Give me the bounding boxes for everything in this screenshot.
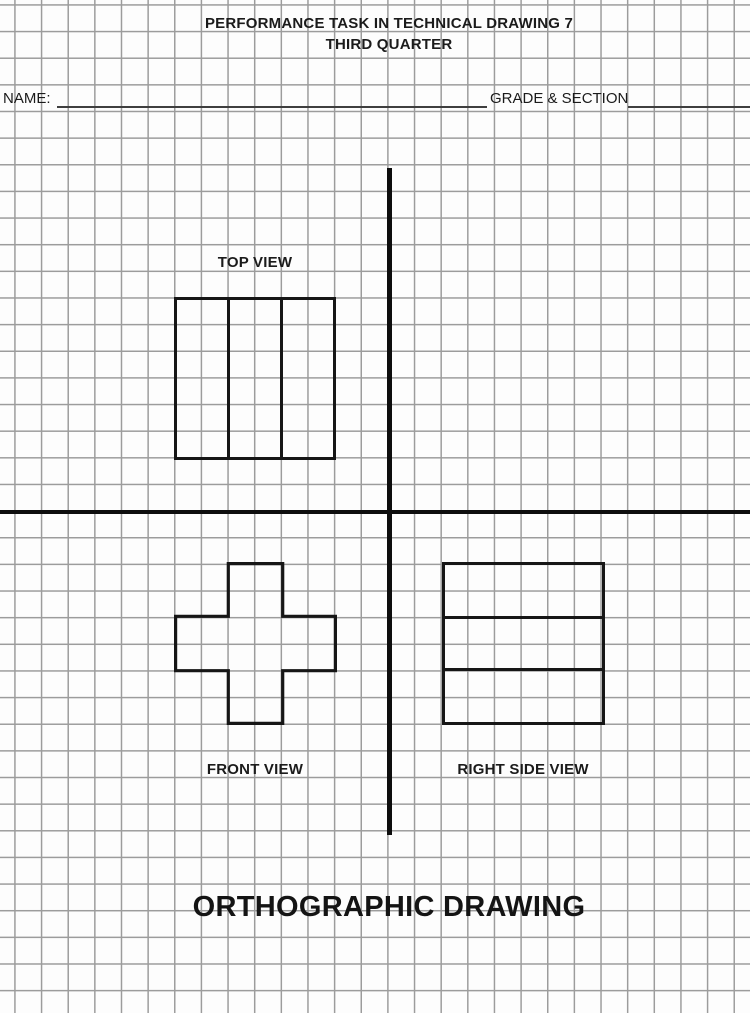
page-subtitle: THIRD QUARTER [14,36,750,53]
top-view-shape [174,297,336,460]
top-view-divider-1 [227,300,230,457]
top-view-label: TOP VIEW [174,254,336,271]
name-label: NAME: [3,90,51,107]
right-side-view-label: RIGHT SIDE VIEW [436,761,610,778]
right-side-view-divider-2 [445,668,602,671]
front-view-shape [174,562,337,725]
grade-section-fill-line [628,106,750,108]
front-view-label: FRONT VIEW [168,761,342,778]
horizontal-axis-line [0,510,750,514]
page-title: PERFORMANCE TASK IN TECHNICAL DRAWING 7 [14,15,750,32]
worksheet-page: PERFORMANCE TASK IN TECHNICAL DRAWING 7 … [0,0,750,1013]
name-fill-line [57,106,487,108]
footer-title: ORTHOGRAPHIC DRAWING [14,891,750,924]
top-view-divider-2 [280,300,283,457]
grade-section-label: GRADE & SECTION [490,90,628,107]
right-side-view-shape [442,562,605,725]
right-side-view-divider-1 [445,616,602,619]
vertical-axis-line [387,168,392,835]
